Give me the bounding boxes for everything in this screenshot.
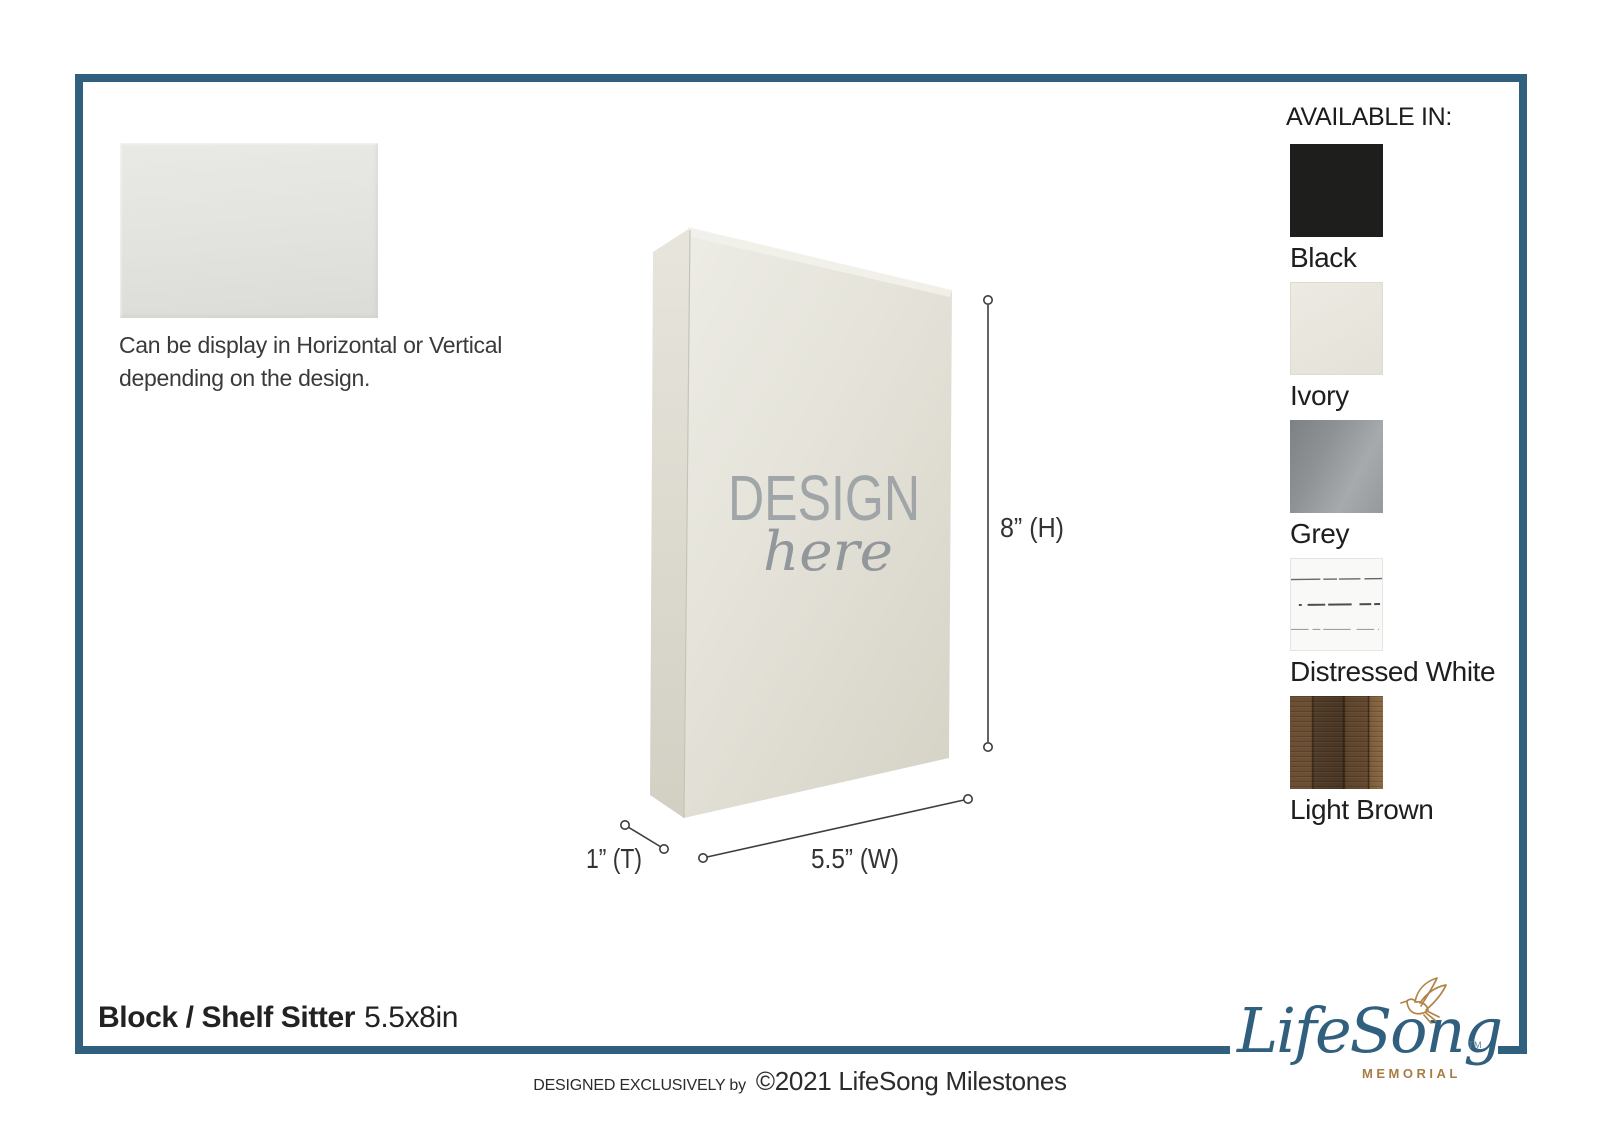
product-title-name: Block / Shelf Sitter	[98, 1001, 355, 1034]
available-in-panel: AVAILABLE IN: Black Ivory Grey Distresse…	[1290, 103, 1540, 834]
frame-border-bottom-left-segment	[75, 1046, 1230, 1054]
color-option-ivory: Ivory	[1290, 282, 1540, 411]
credit-line: DESIGNED EXCLUSIVELY by ©2021 LifeSong M…	[533, 1066, 1067, 1097]
dimension-height	[984, 296, 992, 751]
color-option-distressed-white: Distressed White	[1290, 558, 1540, 687]
swatch-ivory	[1290, 282, 1383, 375]
product-title: Block / Shelf Sitter5.5x8in	[98, 1001, 458, 1035]
credit-copyright: ©2021 LifeSong Milestones	[756, 1066, 1067, 1097]
orientation-caption-line1: Can be display in Horizontal or Vertical	[119, 329, 502, 362]
dimension-thickness-label: 1” (T)	[586, 843, 642, 874]
swatch-label: Ivory	[1290, 381, 1540, 411]
dimension-height-label: 8” (H)	[1000, 512, 1064, 543]
frame-border-bottom-right-segment	[1498, 1046, 1527, 1054]
watermark-here: here	[763, 520, 893, 583]
available-in-title: AVAILABLE IN:	[1286, 103, 1540, 132]
swatch-distressed-white	[1290, 558, 1383, 651]
color-option-light-brown: Light Brown	[1290, 696, 1540, 825]
orientation-caption: Can be display in Horizontal or Vertical…	[119, 329, 502, 395]
product-photo-horizontal	[120, 143, 378, 318]
frame-border-left	[75, 74, 83, 1054]
logo-trademark: TM	[1468, 1040, 1482, 1050]
product-block-3d: DESIGN here 8” (H) 5.5” (W) 1” (T)	[560, 190, 1100, 900]
logo-brand-script: LifeSong	[1237, 1000, 1501, 1062]
color-option-black: Black	[1290, 144, 1540, 273]
dimension-width-label: 5.5” (W)	[811, 843, 899, 874]
swatch-label: Grey	[1290, 519, 1540, 549]
frame-border-top	[75, 74, 1527, 82]
block-side-face	[650, 228, 690, 818]
swatch-label: Black	[1290, 243, 1540, 273]
credit-designed-by: DESIGNED EXCLUSIVELY by	[533, 1077, 746, 1095]
swatch-label: Light Brown	[1290, 795, 1540, 825]
distressed-scratches	[1291, 559, 1382, 650]
orientation-caption-line2: depending on the design.	[119, 362, 502, 395]
product-title-size: 5.5x8in	[364, 1001, 458, 1034]
color-option-grey: Grey	[1290, 420, 1540, 549]
swatch-light-brown	[1290, 696, 1383, 789]
swatch-grey	[1290, 420, 1383, 513]
swatch-label: Distressed White	[1290, 657, 1540, 687]
logo-division-label: MEMORIAL	[1362, 1066, 1461, 1081]
dove-icon	[1396, 974, 1450, 1026]
swatch-black	[1290, 144, 1383, 237]
